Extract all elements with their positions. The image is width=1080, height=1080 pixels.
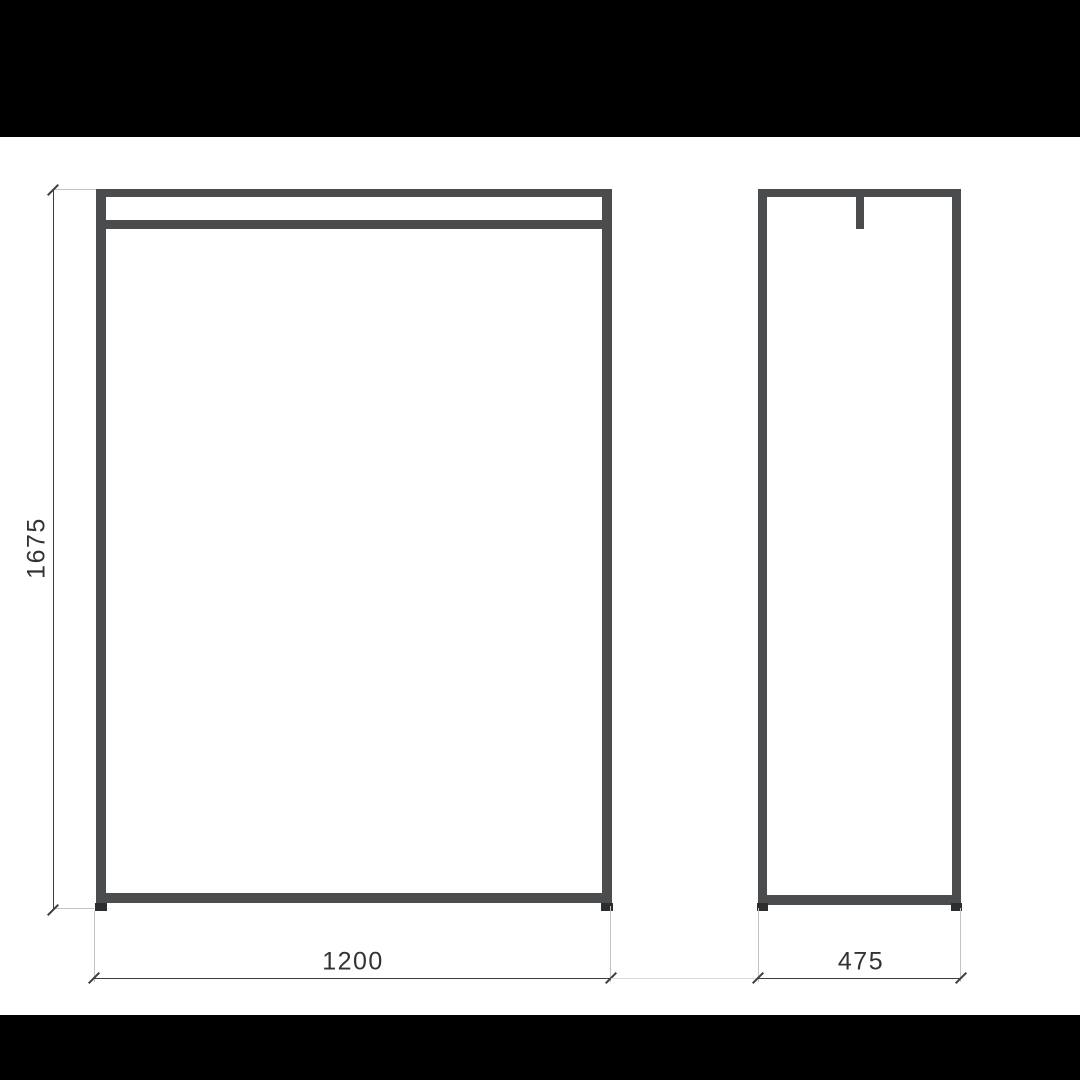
technical-drawing-canvas: 1675 1200 475 — [0, 0, 1080, 1080]
depth-dimension-line — [758, 978, 961, 979]
depth-extension-line-right — [960, 908, 961, 982]
dimension-depth: 475 — [0, 0, 1080, 1080]
depth-dimension-label: 475 — [838, 948, 884, 977]
depth-extension-line-left — [758, 908, 759, 982]
